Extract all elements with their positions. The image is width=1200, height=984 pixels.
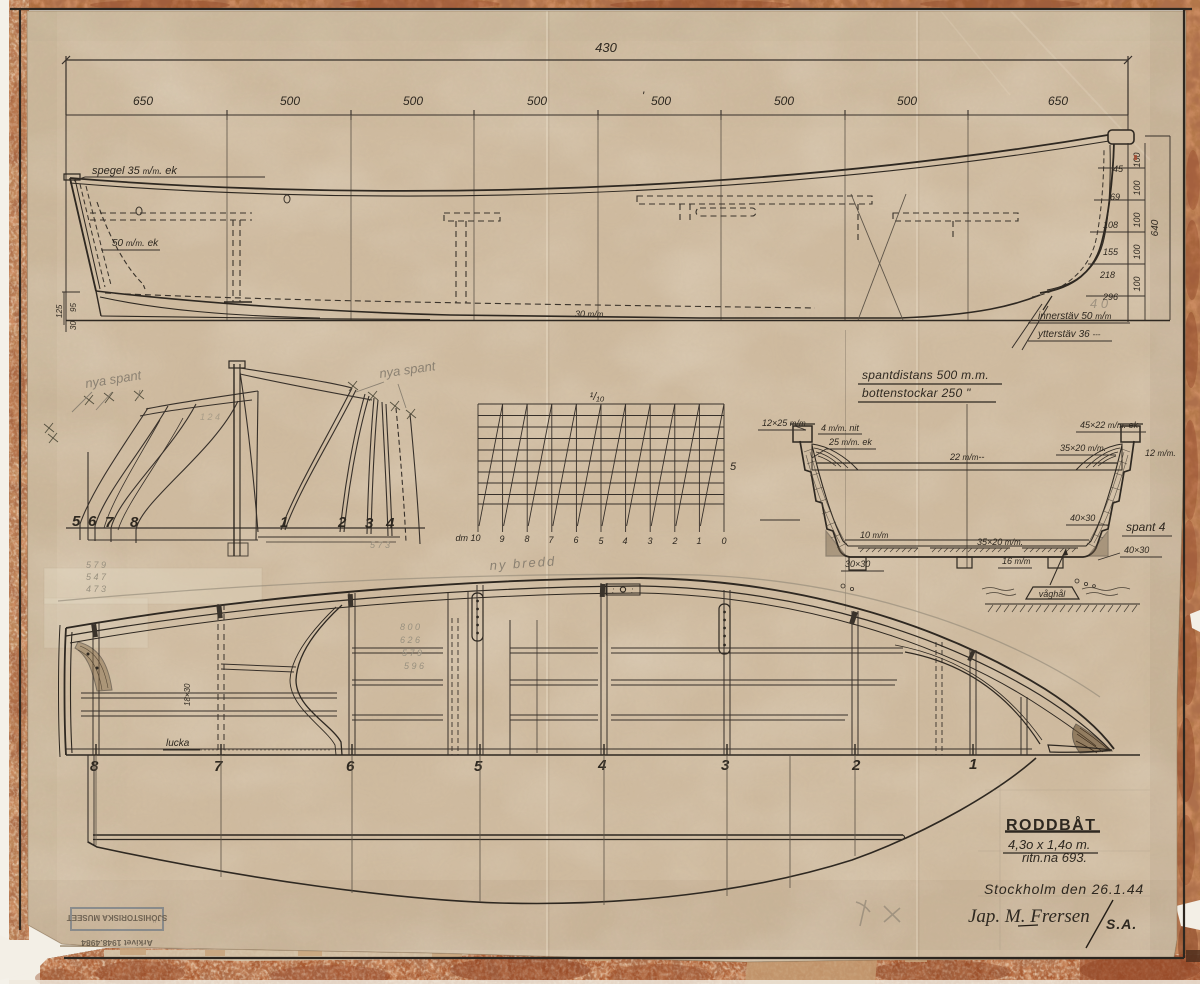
svg-text:500: 500 <box>774 94 794 108</box>
svg-text:16 m/m: 16 m/m <box>1002 556 1031 566</box>
svg-text:8: 8 <box>90 758 99 775</box>
svg-text:500: 500 <box>527 94 547 108</box>
svg-text:218: 218 <box>1099 270 1115 280</box>
svg-text:69: 69 <box>1110 192 1120 202</box>
svg-text:10 m/m: 10 m/m <box>860 530 889 540</box>
svg-text:spant 4: spant 4 <box>1126 520 1166 534</box>
svg-text:bottenstockar 250 ": bottenstockar 250 " <box>862 386 971 400</box>
svg-text:95: 95 <box>69 303 78 312</box>
svg-text:spantdistans 500 m.m.: spantdistans 500 m.m. <box>862 368 989 382</box>
svg-text:45: 45 <box>1113 164 1124 174</box>
svg-text:12×25 m/m: 12×25 m/m <box>762 418 806 428</box>
svg-text:45×22 m/m. ek: 45×22 m/m. ek <box>1080 420 1139 430</box>
svg-text:40×30: 40×30 <box>1124 545 1149 555</box>
svg-text:lucka: lucka <box>166 738 190 749</box>
svg-text:25 m/m. ek: 25 m/m. ek <box>828 437 872 447</box>
svg-text:dm 10: dm 10 <box>455 533 480 543</box>
svg-text:4: 4 <box>622 536 627 546</box>
svg-text:2: 2 <box>851 757 861 774</box>
svg-text:våghål: våghål <box>1039 589 1067 599</box>
svg-text:5 4 7: 5 4 7 <box>86 572 107 582</box>
svg-text:500: 500 <box>897 94 917 108</box>
svg-text:5: 5 <box>72 513 81 530</box>
svg-text:100: 100 <box>1132 244 1142 259</box>
svg-text:Arkivet 1948.4984: Arkivet 1948.4984 <box>81 938 153 948</box>
svg-text::: : <box>631 586 633 595</box>
svg-text:1: 1 <box>969 756 977 773</box>
svg-text::: : <box>612 586 614 595</box>
svg-text:155: 155 <box>1103 247 1119 257</box>
svg-text:3: 3 <box>721 757 730 774</box>
svg-text:5 9 6: 5 9 6 <box>404 661 424 671</box>
svg-text:5: 5 <box>730 461 737 473</box>
svg-text:7: 7 <box>105 514 114 531</box>
svg-text:1: 1 <box>696 536 701 546</box>
svg-text:4 0: 4 0 <box>1090 296 1109 311</box>
svg-text:500: 500 <box>403 94 423 108</box>
svg-text:4 7 3: 4 7 3 <box>86 584 106 594</box>
svg-text:SJÖHISTORISKA MUSEET: SJÖHISTORISKA MUSEET <box>67 913 168 922</box>
svg-text:3: 3 <box>647 536 652 546</box>
svg-text:30×30: 30×30 <box>845 559 870 569</box>
svg-text:500: 500 <box>280 94 300 108</box>
svg-text:8 0 0: 8 0 0 <box>400 622 420 632</box>
svg-text:35×20 m/m.: 35×20 m/m. <box>977 537 1023 547</box>
svg-text:108: 108 <box>1103 220 1118 230</box>
svg-text:4: 4 <box>597 757 607 774</box>
svg-text:5: 5 <box>474 758 483 775</box>
svg-text:ytterstäv 36 ---: ytterstäv 36 --- <box>1037 329 1101 340</box>
svg-text:22 m/m--: 22 m/m-- <box>949 452 984 462</box>
svg-text:0: 0 <box>721 536 726 546</box>
svg-text:9: 9 <box>499 534 504 544</box>
svg-text:Jap. M. Frersen: Jap. M. Frersen <box>968 906 1090 927</box>
svg-text:12 m/m.: 12 m/m. <box>1145 448 1176 458</box>
svg-text:2: 2 <box>337 514 347 531</box>
svg-text:30: 30 <box>69 321 78 330</box>
svg-text:30 m/m: 30 m/m <box>575 309 604 319</box>
svg-text:5 7 9: 5 7 9 <box>402 648 422 658</box>
svg-text:1: 1 <box>280 514 288 531</box>
svg-text:35×20 m/m.: 35×20 m/m. <box>1060 443 1106 453</box>
svg-text:8: 8 <box>130 514 139 531</box>
svg-text:640: 640 <box>1150 219 1161 236</box>
svg-text:4: 4 <box>385 515 395 532</box>
svg-text:5 7 9: 5 7 9 <box>86 560 106 570</box>
svg-text:6 2 6: 6 2 6 <box>400 635 420 645</box>
svg-text:100: 100 <box>1132 276 1142 291</box>
svg-text:100: 100 <box>1132 180 1142 195</box>
svg-text:18×30: 18×30 <box>183 683 192 706</box>
svg-text:6: 6 <box>573 535 578 545</box>
svg-text:spegel 35 m/m. ek: spegel 35 m/m. ek <box>92 165 177 177</box>
svg-text:S.A.: S.A. <box>1106 916 1137 932</box>
svg-text:3: 3 <box>365 515 374 532</box>
svg-text:125: 125 <box>55 304 64 318</box>
svg-text:430: 430 <box>595 40 617 55</box>
svg-text:innerstäv 50 m/m: innerstäv 50 m/m <box>1038 311 1112 322</box>
svg-text:4 m/m. nit: 4 m/m. nit <box>821 423 859 433</box>
svg-text:8: 8 <box>524 534 529 544</box>
svg-text:ritn.na 693.: ritn.na 693. <box>1022 850 1087 865</box>
svg-text:6: 6 <box>346 758 355 775</box>
svg-text:2: 2 <box>671 536 677 546</box>
svg-text:650: 650 <box>1048 94 1068 108</box>
svg-text:7: 7 <box>214 758 223 775</box>
svg-text:Stockholm den 26.1.44: Stockholm den 26.1.44 <box>984 881 1144 897</box>
svg-text:1 2 4: 1 2 4 <box>200 412 220 422</box>
svg-text:5 7 3: 5 7 3 <box>370 540 390 550</box>
svg-text:50 m/m. ek: 50 m/m. ek <box>112 238 159 249</box>
svg-text:40×30: 40×30 <box>1070 513 1095 523</box>
svg-text:650: 650 <box>133 94 153 108</box>
svg-text:100: 100 <box>1132 212 1142 227</box>
svg-text:500: 500 <box>651 94 671 108</box>
svg-text:¹/₁₀: ¹/₁₀ <box>590 391 605 403</box>
svg-text:6: 6 <box>88 513 97 530</box>
